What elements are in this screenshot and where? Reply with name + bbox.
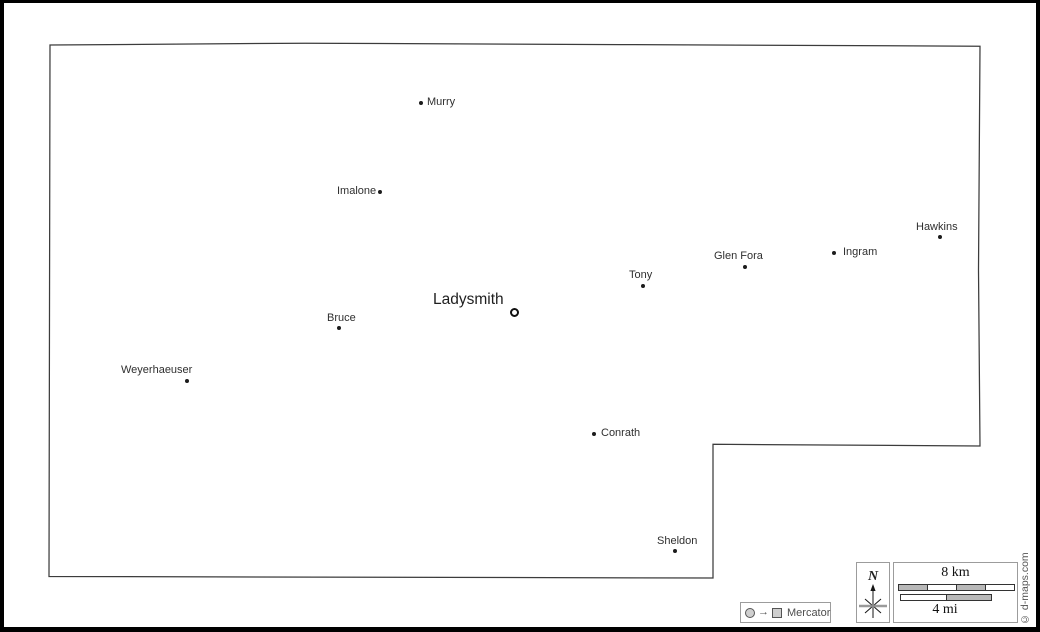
- scale-mi-label: 4 mi: [900, 602, 990, 618]
- town-dot: [743, 265, 747, 269]
- town-label: Hawkins: [916, 221, 958, 234]
- town-label: Ingram: [843, 246, 877, 259]
- town-label: Conrath: [601, 427, 640, 440]
- copyright-credit: © d-maps.com: [1019, 545, 1031, 625]
- scale-bar-km: [898, 584, 1015, 591]
- town-dot: [641, 284, 645, 288]
- north-letter: N: [867, 569, 879, 584]
- scale-bar-box: 8 km 4 mi: [893, 562, 1018, 623]
- town-label: Weyerhaeuser: [121, 364, 192, 377]
- town-label: Sheldon: [657, 535, 697, 548]
- town-label: Imalone: [337, 185, 376, 198]
- county-seat-label: Ladysmith: [433, 291, 504, 310]
- globe-circle-icon: [745, 608, 755, 618]
- scale-km-label: 8 km: [898, 565, 1013, 581]
- town-dot: [419, 101, 423, 105]
- town-dot: [673, 549, 677, 553]
- town-dot: [832, 251, 836, 255]
- county-seat-marker: [510, 308, 519, 317]
- projection-name: Mercator: [787, 607, 830, 619]
- projection-legend: → Mercator: [740, 602, 831, 623]
- town-dot: [938, 235, 942, 239]
- scale-bar-mi: [900, 594, 992, 601]
- arrow-right-icon: →: [758, 607, 769, 618]
- town-label: Bruce: [327, 312, 356, 325]
- town-dot: [337, 326, 341, 330]
- town-label: Murry: [427, 96, 455, 109]
- map-page: LadysmithMurryImaloneHawkinsIngramGlen F…: [0, 0, 1040, 632]
- town-label: Glen Fora: [714, 250, 763, 263]
- town-label: Tony: [629, 269, 652, 282]
- town-dot: [592, 432, 596, 436]
- county-boundary-layer: [0, 0, 1040, 632]
- town-dot: [378, 190, 382, 194]
- projected-square-icon: [772, 608, 782, 618]
- town-dot: [185, 379, 189, 383]
- north-compass-box: N: [856, 562, 890, 623]
- north-compass-icon: N: [857, 563, 889, 622]
